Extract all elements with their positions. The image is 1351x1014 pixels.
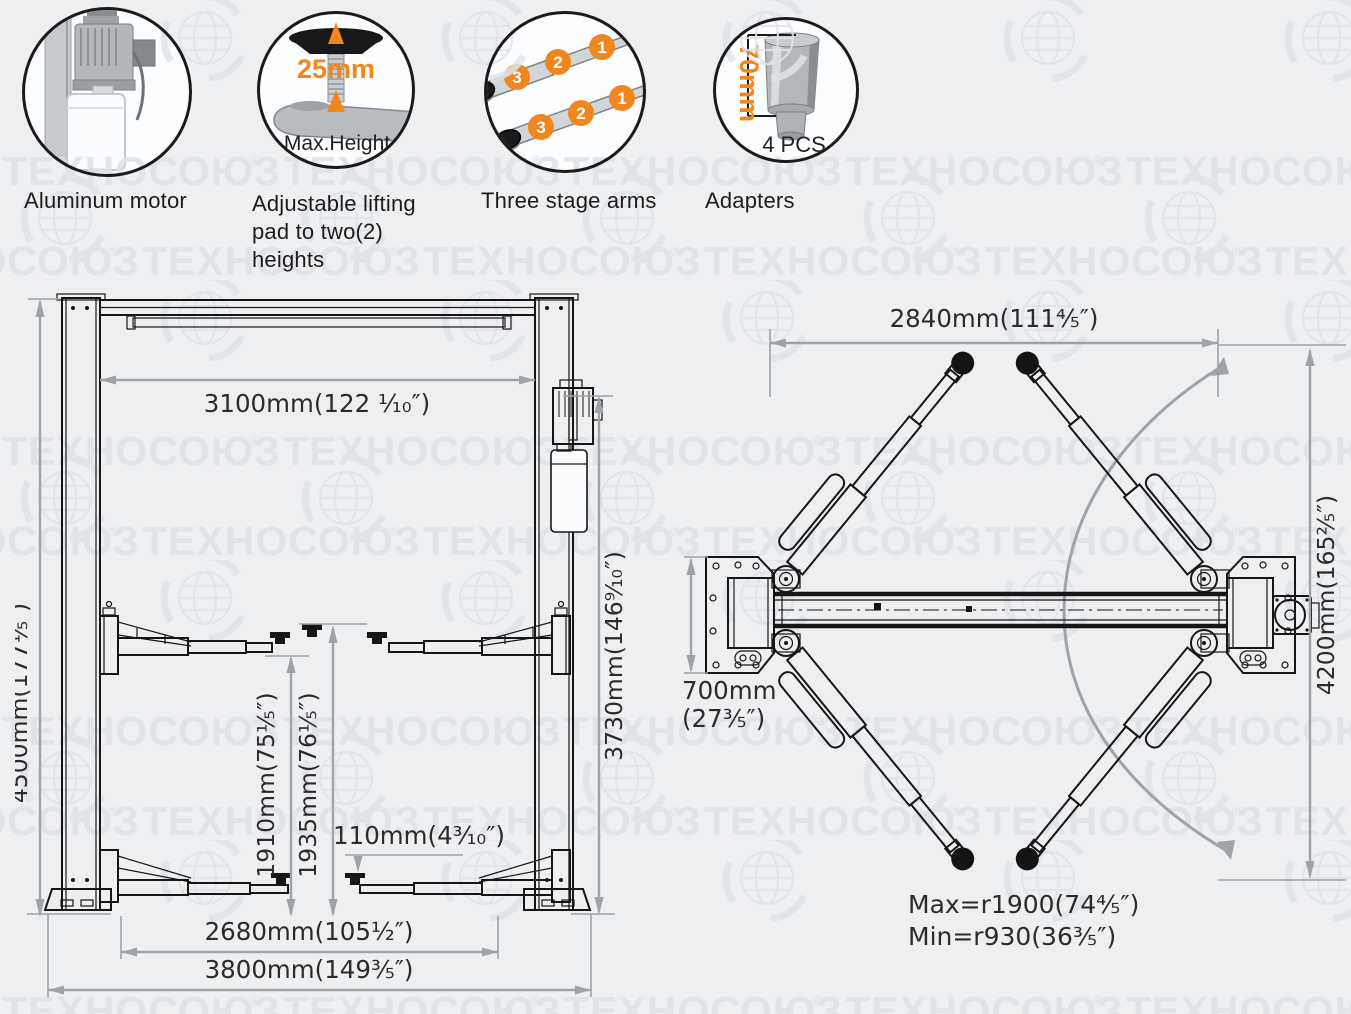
feature-adapters: 70mm 4 PCS: [713, 17, 859, 163]
lift-spec-sheet: Aluminum motor 25mm: [0, 0, 1351, 1014]
feature-circle-ring: [713, 17, 859, 163]
hydraulic-power-unit: [551, 380, 602, 532]
feature-caption-adapters: Adapters: [705, 187, 855, 215]
front-view-drawing: 4500mm(177⅕″) 3100mm(122 ¹⁄₁₀″) 3730mm(1…: [15, 288, 660, 1014]
dim-base-plate-depth: 700mm: [682, 676, 777, 705]
feature-caption-aluminum-motor: Aluminum motor: [24, 187, 244, 215]
feature-caption-three-stage-arms: Three stage arms: [481, 187, 701, 215]
dim-lift-height-low: 1910mm(75⅕″): [252, 692, 280, 877]
feature-circle-ring: [484, 11, 646, 173]
dim-base-plate-depth-inches: (27⅗″): [682, 704, 765, 733]
feature-circle-ring: [257, 11, 415, 169]
dim-pad-min-height: 110mm(4³⁄₁₀″): [333, 821, 505, 850]
top-view-drawing: 2840mm(111⅘″) 4200mm(165⅖″) 700mm (27⅗″)…: [678, 293, 1351, 969]
dim-arm-radius-max: Max=r1900(74⅘″): [908, 890, 1139, 919]
dim-overall-width: 3800mm(149⅗″): [205, 955, 414, 984]
feature-three-stage-arms: 3 2 1 3 2 1: [484, 11, 646, 173]
lift-arms-lowered: [100, 850, 570, 902]
arm-swing-arc: [1064, 357, 1235, 860]
feature-caption-adjustable-pad: Adjustable lifting pad to two(2) heights: [252, 190, 440, 274]
feature-adjustable-pad: 25mm Max.Height: [257, 11, 415, 169]
front-view-dimensions: 4500mm(177⅕″) 3100mm(122 ¹⁄₁₀″) 3730mm(1…: [15, 299, 628, 997]
arm-pivots: [773, 566, 1217, 656]
dim-arm-radius-min: Min=r930(36⅗″): [908, 922, 1116, 951]
swing-arms: [771, 335, 1219, 888]
dim-column-height: 3730mm(146⁹⁄₁₀″): [600, 551, 628, 761]
dim-base-inner-width: 2680mm(105½″): [205, 917, 414, 946]
dim-inner-width: 3100mm(122 ¹⁄₁₀″): [204, 389, 430, 418]
feature-aluminum-motor: [22, 7, 192, 177]
feature-circle-ring: [22, 7, 192, 177]
dim-overall-height: 4500mm(177⅕″): [15, 603, 33, 803]
dim-lift-height-high: 1935mm(76⅕″): [294, 692, 322, 877]
dim-drive-through-width: 2840mm(111⅘″): [890, 304, 1099, 333]
dim-overall-length: 4200mm(165⅖″): [1312, 495, 1340, 695]
